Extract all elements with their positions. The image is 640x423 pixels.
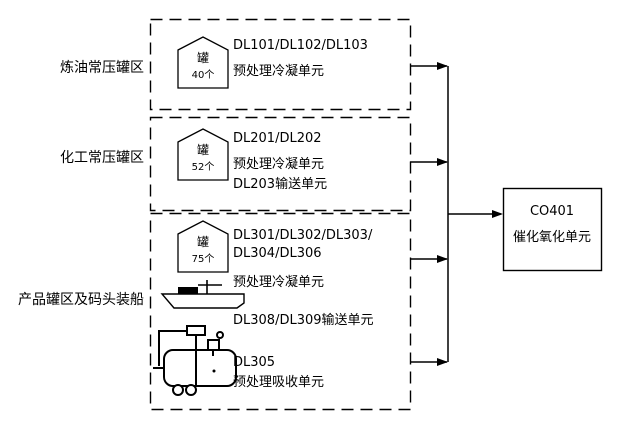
unit-desc-condensation: 预处理冷凝单元 [233,60,324,79]
tank-count: 40个 [178,66,228,81]
unit-tags-dl300-a: DL301/DL302/DL303/ [233,228,372,243]
tank-glyph-label: 罐 [178,141,228,158]
flow-connectors [410,66,501,362]
unit-desc-condensation: 预处理冷凝单元 [233,153,324,172]
process-flow-diagram: 炼油常压罐区 化工常压罐区 产品罐区及码头装船 罐 40个 罐 52个 罐 75… [0,0,640,423]
unit-tags-dl100: DL101/DL102/DL103 [233,38,368,53]
unit-desc-transfer: DL203输送单元 [233,173,327,192]
unit-tags-dl300-b: DL304/DL306 [233,246,322,261]
destination-unit-code: CO401 [503,204,601,219]
unit-desc-condensation: 预处理冷凝单元 [233,271,324,290]
tank-count: 52个 [178,158,228,173]
ship-icon [162,280,244,308]
tank-glyph-label: 罐 [178,49,228,66]
group-label-product-tank-dock-area: 产品罐区及码头装船 [0,289,144,309]
group-label-refinery-tank-area: 炼油常压罐区 [0,57,144,77]
unit-tag-dl305: DL305 [233,355,275,370]
unit-desc-absorption: 预处理吸收单元 [233,371,324,390]
absorber-skid-icon [153,326,236,395]
destination-unit-name: 催化氧化单元 [503,226,601,245]
unit-tags-dl200: DL201/DL202 [233,131,322,146]
tank-glyph-label: 罐 [178,233,228,250]
group-label-chemical-tank-area: 化工常压罐区 [0,147,144,167]
tank-count: 75个 [178,250,228,265]
unit-desc-transfer: DL308/DL309输送单元 [233,309,374,328]
